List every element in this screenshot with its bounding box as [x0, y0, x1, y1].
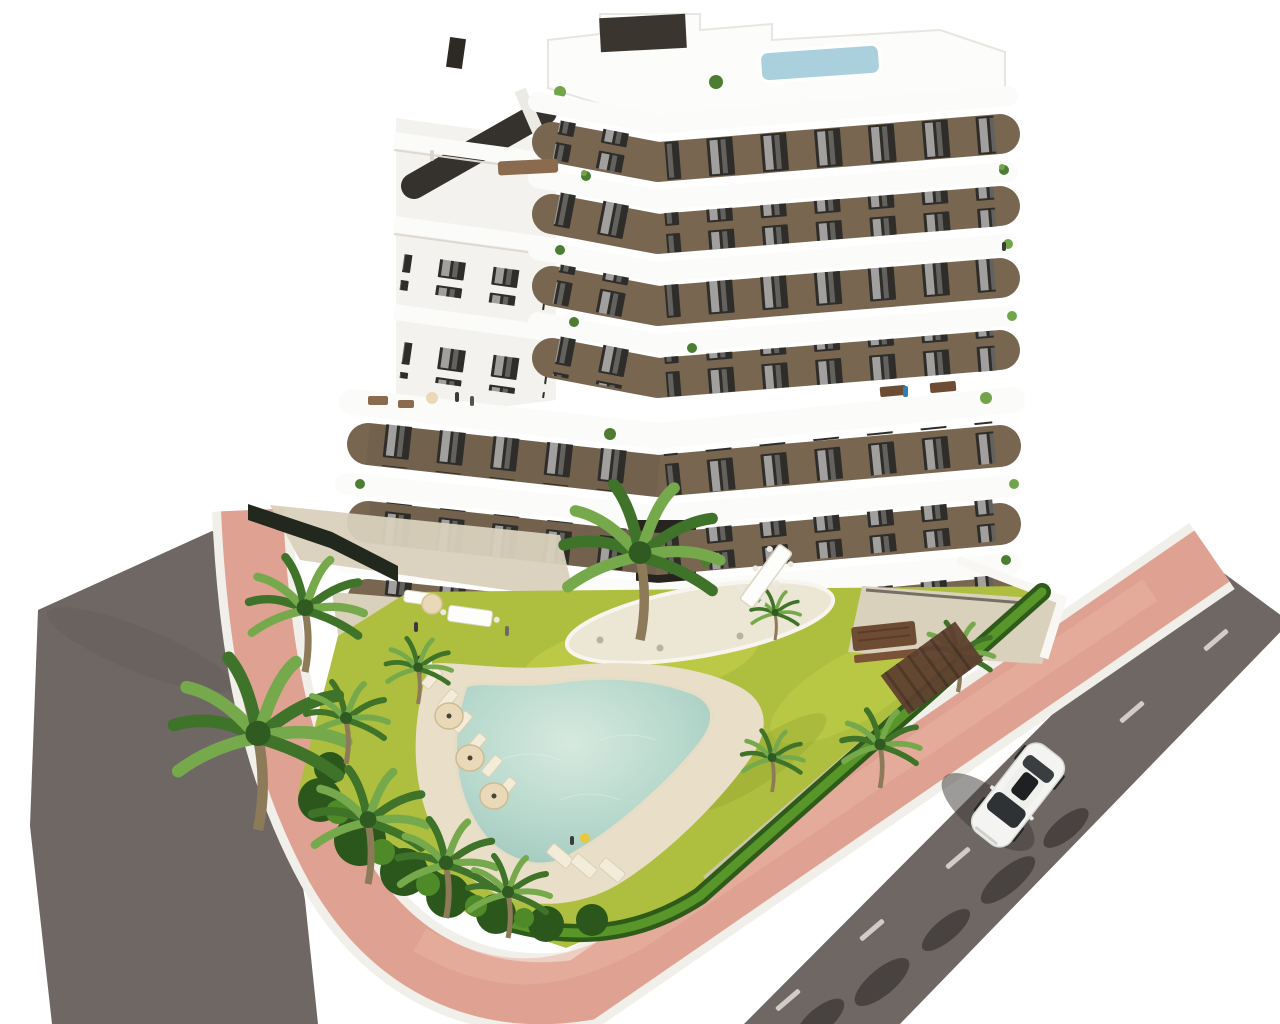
person-terrace	[505, 626, 509, 636]
roof-stair-box	[599, 14, 687, 52]
person-at-pool	[570, 836, 574, 845]
architectural-render	[0, 0, 1280, 1024]
roof-plant	[709, 75, 723, 89]
person-terrace	[414, 622, 418, 632]
rooftop-pool	[759, 44, 881, 82]
patio-umbrella	[422, 594, 442, 614]
yellow-float	[580, 833, 590, 843]
